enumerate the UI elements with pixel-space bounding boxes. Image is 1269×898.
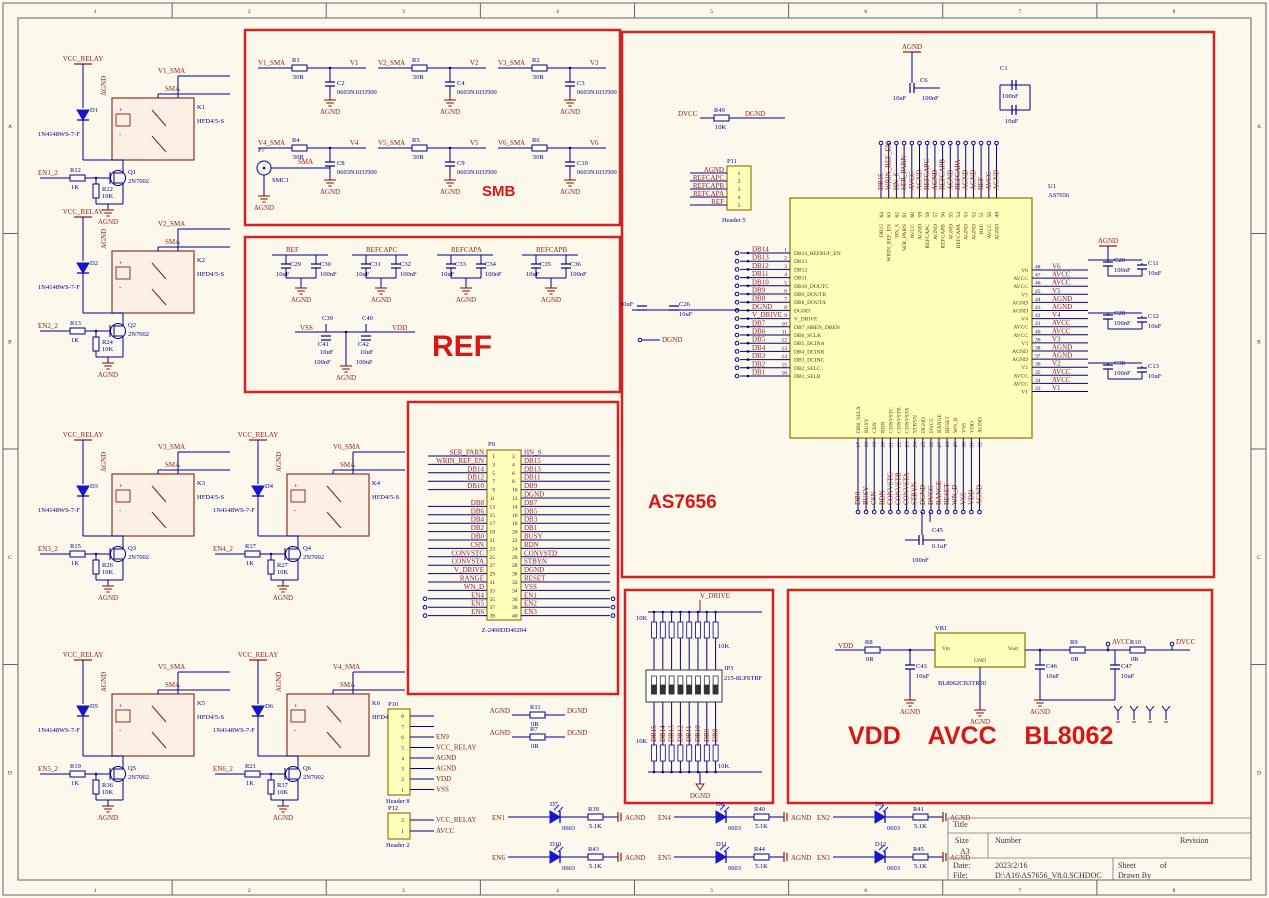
label: 38 — [1035, 346, 1041, 352]
label: + — [294, 483, 298, 490]
label: AGND — [625, 814, 645, 822]
open-pin — [735, 350, 739, 354]
open-pin — [735, 276, 739, 280]
label: JP3 — [724, 665, 733, 672]
label: Header 8 — [386, 798, 410, 805]
dip-switch-lever — [687, 685, 692, 694]
label: 50R — [533, 154, 545, 161]
label: C33 — [455, 261, 466, 268]
label: RANGE — [937, 413, 943, 433]
diode-icon — [77, 110, 89, 120]
diode-icon — [77, 486, 89, 496]
zone-col-label: 4 — [556, 9, 559, 15]
open-pin — [735, 374, 739, 378]
label: V_DRIVE — [700, 592, 730, 600]
resistor — [713, 622, 718, 638]
label: 58 — [925, 212, 931, 218]
label: DB1 — [752, 369, 766, 377]
label: - — [119, 727, 121, 734]
label: 25 — [921, 442, 927, 448]
label: CONVSTA — [452, 558, 485, 566]
label: C11 — [1148, 260, 1159, 267]
label: 50R — [413, 74, 425, 81]
label: 2 — [401, 818, 404, 824]
label: 36 — [1035, 362, 1041, 368]
label: 0R — [531, 743, 539, 750]
label: 100nF — [320, 271, 337, 278]
label: 11 — [782, 330, 788, 336]
label: R17 — [245, 543, 257, 550]
label: 10K — [718, 643, 730, 650]
led-icon — [875, 851, 885, 863]
label: DB13 — [752, 254, 769, 262]
label: V5_SMA — [378, 139, 405, 147]
label: VCC_RELAY — [436, 816, 477, 824]
label: DB12 — [676, 725, 684, 742]
label: R8 — [865, 639, 873, 646]
label: 1N4148WS-7-F — [213, 507, 255, 514]
open-pin — [423, 614, 427, 618]
zone-col-label: 2 — [248, 9, 251, 15]
titleblock-date-value: 2023/2/16 — [995, 861, 1027, 870]
junction-dot — [747, 317, 750, 320]
label: AGND — [275, 452, 283, 472]
label: 47 — [1035, 273, 1041, 279]
open-pin — [995, 141, 999, 145]
label: BUSY — [864, 418, 870, 433]
relay-body — [287, 474, 369, 536]
label: DB10 — [694, 725, 702, 742]
label: AGND — [275, 672, 283, 692]
led-section: EN1D70603R395.1KAGNDEN4D80603R405.1KAGND… — [492, 801, 970, 872]
open-pin — [735, 268, 739, 272]
label: R15 — [70, 543, 81, 550]
label: C3 — [577, 80, 585, 87]
label: 37 — [1035, 354, 1041, 360]
label: DGND — [690, 792, 710, 800]
label: V1 — [1052, 384, 1061, 392]
section-title-smb: SMB — [482, 183, 515, 200]
resistor — [865, 647, 880, 653]
label: DB8 — [471, 499, 485, 507]
label: P11 — [727, 158, 737, 165]
label: AVCC — [1013, 373, 1028, 379]
wire — [1146, 706, 1150, 711]
label: R41 — [913, 806, 924, 813]
wire — [1166, 706, 1170, 711]
zone-row-label: A — [8, 124, 12, 130]
label: WRIN_REF_EN — [436, 457, 484, 465]
resistor — [530, 734, 545, 740]
label: R10 — [1130, 639, 1141, 646]
resistor — [530, 712, 545, 718]
resistor — [292, 65, 307, 71]
label: WN_D — [951, 485, 959, 505]
label: SMA — [298, 158, 313, 166]
label: DGND — [524, 491, 544, 499]
label: 1N4148WS-7-F — [38, 507, 80, 514]
label: 215-8LPSTRF — [724, 675, 763, 682]
label: DVCC — [678, 110, 698, 118]
zone-row-label: D — [1257, 770, 1261, 776]
label: DB6 — [752, 328, 766, 336]
label: 5 — [492, 471, 495, 477]
relay-block-1: VCC_RELAYD11N4148WS-7-F+-V1_SMASMAAGNDK1… — [38, 55, 230, 226]
open-pin — [972, 141, 976, 145]
label: AVCC — [1052, 368, 1071, 376]
junction-dot — [747, 367, 750, 370]
label: 10uF — [1148, 270, 1162, 277]
ground-label: AGND — [98, 218, 118, 226]
label: VSS — [300, 324, 313, 332]
label: DGND — [662, 336, 682, 344]
label: 10K — [636, 615, 648, 622]
label: VSS — [961, 423, 967, 433]
label: 2 — [784, 256, 787, 262]
label: 6 — [784, 289, 787, 295]
label: 35 — [490, 597, 496, 603]
label: DB5 — [752, 336, 766, 344]
label: DB9 — [752, 287, 766, 295]
ground-label: AGND — [1030, 708, 1050, 716]
label: 10uF — [276, 271, 290, 278]
label: 60 — [910, 212, 916, 218]
label: V3 — [590, 59, 599, 67]
label: DB1 — [524, 524, 538, 532]
label: R12 — [70, 167, 81, 174]
open-pin — [895, 141, 899, 145]
label: 57 — [933, 212, 939, 218]
label: 50R — [293, 74, 305, 81]
label: AVCC — [1052, 279, 1071, 287]
label: SER_PARN — [450, 449, 484, 457]
label: RDN — [878, 490, 886, 505]
open-pin — [872, 510, 876, 514]
label: 15 — [490, 513, 496, 519]
label: CSN — [470, 541, 484, 549]
label: 27 — [937, 442, 943, 448]
relay-body — [112, 474, 194, 536]
label: 0603 — [887, 865, 900, 872]
label: 14 — [512, 504, 518, 510]
label: V_DRIVE — [752, 311, 782, 319]
zone-row-label: D — [8, 770, 12, 776]
label: AGND — [100, 452, 108, 472]
label: AVCC — [436, 827, 455, 835]
label: 33 — [1035, 386, 1041, 392]
label: V4_SMA — [258, 139, 285, 147]
label: STBYN — [524, 558, 547, 566]
open-pin — [735, 300, 739, 304]
open-pin — [949, 141, 953, 145]
label: AGND — [964, 224, 970, 240]
label: VSS — [436, 786, 449, 794]
resistor — [913, 854, 928, 860]
label: AGND — [993, 170, 1001, 190]
label: CSN — [870, 491, 878, 505]
label: C41 — [318, 341, 329, 348]
open-pin — [905, 510, 909, 514]
label: 12 — [782, 338, 788, 344]
resistor — [70, 551, 85, 557]
label: R11 — [530, 704, 541, 711]
zone-row-label: A — [1257, 124, 1261, 130]
label: 1 — [784, 248, 787, 254]
resistor — [678, 745, 683, 761]
label: REFCAPC — [366, 246, 397, 254]
relay-block-5: VCC_RELAYD51N4148WS-7-F+-V5_SMASMAAGNDK5… — [38, 651, 230, 822]
open-pin — [913, 510, 917, 514]
label: 3 — [492, 462, 495, 468]
label: V1_SMA — [258, 59, 285, 67]
zone-col-label: 5 — [710, 9, 713, 15]
open-pin — [879, 141, 883, 145]
label: DB14_REFBUF_EN — [794, 251, 841, 257]
label: 1 — [401, 788, 404, 794]
label: EN2 — [817, 814, 830, 822]
label: 5.1K — [755, 823, 768, 830]
label: 10uF — [620, 301, 634, 308]
label: R24 — [102, 339, 114, 346]
label: 32 — [512, 580, 518, 586]
label: 10uF — [916, 673, 930, 680]
label: C9 — [457, 160, 465, 167]
label: 10K — [102, 789, 114, 796]
label: VR1 — [935, 625, 947, 632]
label: 50 — [987, 212, 993, 218]
label: 3 — [738, 187, 741, 193]
label: V4_SMA — [333, 663, 360, 671]
label: Vout — [1008, 646, 1019, 652]
label: DB11 — [524, 474, 541, 482]
label: V5 — [470, 139, 479, 147]
label: C43 — [916, 663, 927, 670]
label: V3 — [1052, 335, 1061, 343]
ground-label: AGND — [320, 188, 340, 196]
label: 10uF — [893, 95, 907, 102]
label: 10K — [715, 124, 727, 131]
label: 0R — [1131, 656, 1139, 663]
junction-dot — [747, 358, 750, 361]
label: DB13 — [794, 259, 807, 265]
label: 1K — [246, 780, 254, 787]
junction-dot — [747, 260, 750, 263]
label: EN5_2 — [38, 765, 58, 773]
ground-label: AGND — [273, 814, 293, 822]
led-icon — [716, 811, 726, 823]
label: 31 — [969, 442, 975, 448]
label: 37 — [490, 605, 496, 611]
label: 10 — [782, 321, 788, 327]
label: 4 — [784, 272, 787, 278]
label: VCC_RELAY — [436, 744, 477, 752]
label: SMA — [340, 681, 355, 689]
label: DB5 — [524, 507, 538, 515]
zone-col-label: 8 — [1173, 888, 1176, 894]
label: R1 — [292, 57, 300, 64]
label: + — [119, 703, 123, 710]
label: 46 — [1035, 281, 1041, 287]
label: 30 — [512, 572, 518, 578]
label: C42 — [358, 341, 369, 348]
label: R45 — [913, 846, 924, 853]
label: - — [294, 727, 296, 734]
ground-label: AGND — [900, 708, 920, 716]
label: AVCC — [910, 224, 916, 239]
label: D3 — [90, 483, 98, 490]
label: REF — [286, 246, 299, 254]
label: WN_B — [953, 417, 959, 433]
label: 50R — [413, 154, 425, 161]
label: R39 — [588, 806, 599, 813]
label: 7 — [401, 725, 404, 731]
resistor — [754, 854, 769, 860]
label: AGND — [791, 814, 811, 822]
resistor — [713, 745, 718, 761]
label: 10uF — [441, 271, 455, 278]
label: C35 — [540, 261, 551, 268]
resistor — [696, 622, 701, 638]
label: DGND — [524, 566, 544, 574]
label: C32 — [400, 261, 411, 268]
label: V_DRIVE — [454, 566, 484, 574]
titleblock-file-value: D:\A16\AS7656_V8.0.SCHDOC — [995, 871, 1102, 880]
label: AVCC — [1052, 376, 1071, 384]
label: 42 — [1035, 313, 1041, 319]
label: Header 5 — [722, 217, 746, 224]
label: EN1 — [524, 591, 537, 599]
ground-label: AGND — [291, 296, 311, 304]
label: D1 — [90, 107, 98, 114]
label: DB8_DOUTA — [794, 300, 826, 306]
power-label: VCC_RELAY — [63, 651, 104, 659]
label: 29 — [953, 442, 959, 448]
open-pin — [735, 284, 739, 288]
wire — [1134, 706, 1138, 711]
label: V6_SMA — [333, 443, 360, 451]
label: 62 — [894, 212, 900, 218]
relay-block-3: VCC_RELAYD31N4148WS-7-F+-V3_SMASMAAGNDK3… — [38, 431, 230, 602]
label: AGND — [100, 76, 108, 96]
open-pin — [611, 605, 615, 609]
label: DB7 — [752, 319, 766, 327]
label: DB3 — [752, 352, 766, 360]
label: 5 — [401, 746, 404, 752]
label: AVCC — [1052, 271, 1071, 279]
label: DB10 — [752, 278, 769, 286]
label: WN_D — [464, 583, 484, 591]
label: 1K — [71, 184, 79, 191]
junction-dot — [747, 334, 750, 337]
titleblock-drawnby-label: Drawn By — [1118, 871, 1151, 880]
label: 2N7002 — [128, 331, 149, 338]
section-title-as7656: AS7656 — [648, 492, 717, 514]
label: R2 — [532, 57, 540, 64]
label: 2 — [738, 179, 741, 185]
label: 34 — [1035, 378, 1041, 384]
label: STBYN — [913, 415, 919, 433]
label: AVCC — [1013, 333, 1028, 339]
label: DB2_SELC — [794, 366, 821, 372]
label: - — [119, 131, 121, 138]
label: R19 — [70, 763, 81, 770]
label: 55 — [948, 212, 954, 218]
label: R22 — [102, 186, 113, 193]
label: 10K — [718, 763, 730, 770]
zone-col-label: 6 — [864, 888, 867, 894]
label: R40 — [754, 806, 765, 813]
label: 5.1K — [755, 863, 768, 870]
label: 3 — [401, 767, 404, 773]
label: AGND — [1052, 303, 1072, 311]
label: EN6 — [471, 608, 484, 616]
label: R13 — [70, 320, 81, 327]
dip-switch-lever — [713, 685, 718, 694]
label: DB12 — [752, 262, 769, 270]
label: 24 — [512, 546, 518, 552]
wire — [1114, 706, 1118, 711]
zone-row-label: C — [1257, 555, 1261, 561]
open-pin — [735, 251, 739, 255]
label: SMA — [165, 238, 180, 246]
label: D12 — [875, 841, 886, 848]
label: VSS — [959, 492, 967, 505]
resistor — [652, 622, 657, 638]
open-pin — [735, 366, 739, 370]
label: 2N7002 — [128, 554, 149, 561]
label: DB10 — [467, 482, 484, 490]
open-pin — [856, 510, 860, 514]
label: V4 — [350, 139, 359, 147]
label: DB14 — [467, 465, 484, 473]
label: 1K — [71, 560, 79, 567]
label: AVCC — [987, 224, 993, 239]
label: SMA — [340, 461, 355, 469]
label: REFCAPB — [693, 182, 724, 190]
zone-col-label: 8 — [1173, 9, 1176, 15]
relay-block-2: VCC_RELAYD21N4148WS-7-F+-V2_SMASMAAGNDK2… — [38, 208, 230, 379]
zone-col-label: 6 — [864, 9, 867, 15]
label: HN_S — [524, 449, 542, 457]
label: 0603 — [728, 865, 741, 872]
label: 5.1K — [589, 863, 602, 870]
label: DB13 — [524, 465, 541, 473]
open-pin — [945, 510, 949, 514]
label: 22 — [897, 442, 903, 448]
label: 4 — [401, 756, 404, 762]
label: Q4 — [303, 545, 312, 552]
label: 100nF — [570, 271, 587, 278]
label: HFD4/5-S — [197, 118, 224, 125]
label: - — [119, 507, 121, 514]
label: EN6_2 — [213, 765, 233, 773]
junction-dot — [747, 276, 750, 279]
label: 9 — [492, 488, 495, 494]
label: 7 — [784, 297, 787, 303]
resistor — [704, 622, 709, 638]
label: CONVSTC — [888, 407, 894, 433]
label: D7 — [550, 801, 559, 808]
label: DB10_DOUTC — [794, 284, 829, 290]
junction-dot — [747, 342, 750, 345]
label: C30 — [320, 261, 331, 268]
label: Q3 — [128, 545, 136, 552]
open-pin — [925, 141, 929, 145]
label: 5.1K — [914, 863, 927, 870]
label: - — [119, 284, 121, 291]
label: D4 — [265, 483, 274, 490]
ref-box — [245, 237, 620, 392]
